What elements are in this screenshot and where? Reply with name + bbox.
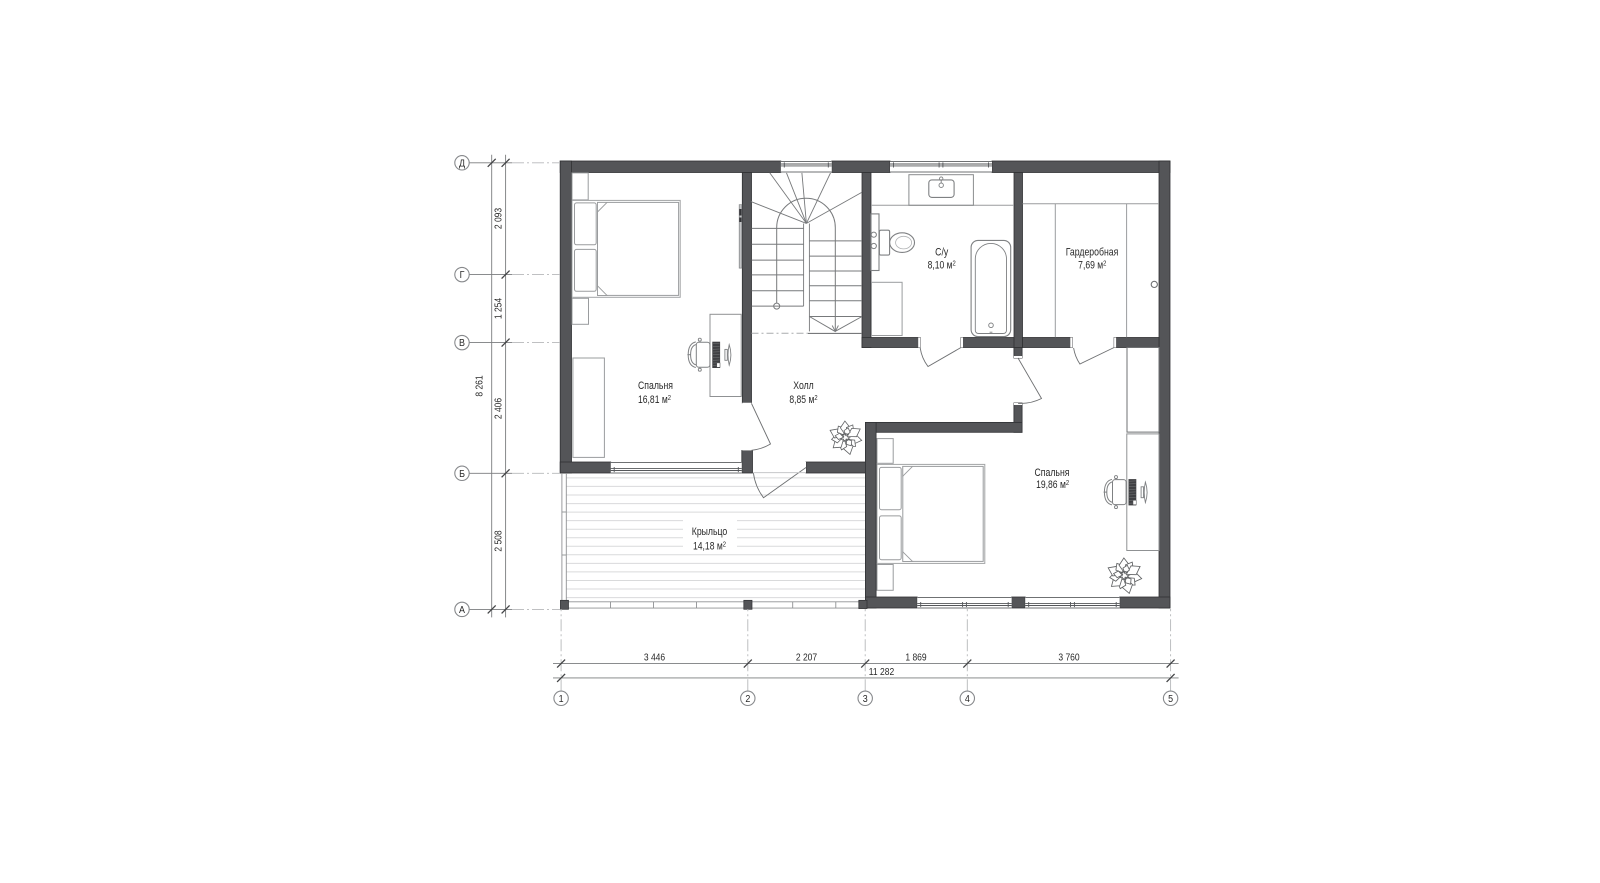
svg-text:3 446: 3 446 bbox=[644, 652, 665, 664]
svg-text:4: 4 bbox=[965, 693, 970, 705]
svg-text:В: В bbox=[459, 338, 465, 350]
svg-text:Спальня: Спальня bbox=[638, 380, 673, 392]
svg-text:2 207: 2 207 bbox=[796, 652, 817, 664]
svg-text:2 093: 2 093 bbox=[493, 208, 505, 229]
svg-text:Крыльцо: Крыльцо bbox=[692, 526, 728, 538]
svg-text:1 869: 1 869 bbox=[905, 652, 926, 664]
svg-text:1 254: 1 254 bbox=[493, 298, 505, 319]
svg-text:14,18 м2: 14,18 м2 bbox=[693, 541, 726, 553]
svg-text:16,81 м2: 16,81 м2 bbox=[638, 394, 671, 406]
svg-text:Д: Д bbox=[459, 158, 465, 170]
svg-text:Гардеробная: Гардеробная bbox=[1066, 245, 1119, 258]
svg-text:5: 5 bbox=[1168, 693, 1173, 705]
svg-text:8,85 м2: 8,85 м2 bbox=[789, 394, 817, 406]
svg-text:2: 2 bbox=[745, 693, 750, 705]
svg-text:Холл: Холл bbox=[793, 380, 814, 392]
svg-text:С/у: С/у bbox=[935, 247, 949, 259]
svg-text:3 760: 3 760 bbox=[1058, 652, 1079, 664]
svg-text:Б: Б bbox=[459, 468, 465, 480]
svg-text:2 508: 2 508 bbox=[493, 530, 505, 551]
svg-text:А: А bbox=[459, 604, 465, 616]
svg-text:3: 3 bbox=[863, 693, 868, 705]
svg-text:8 261: 8 261 bbox=[474, 375, 486, 396]
svg-text:19,86 м2: 19,86 м2 bbox=[1036, 479, 1069, 491]
svg-text:Г: Г bbox=[460, 270, 465, 282]
svg-text:7,69 м2: 7,69 м2 bbox=[1078, 259, 1106, 271]
svg-text:Спальня: Спальня bbox=[1035, 467, 1070, 479]
svg-text:1: 1 bbox=[559, 693, 564, 705]
svg-text:11 282: 11 282 bbox=[869, 666, 894, 678]
svg-text:8,10 м2: 8,10 м2 bbox=[928, 259, 956, 271]
svg-text:2 406: 2 406 bbox=[493, 398, 505, 419]
